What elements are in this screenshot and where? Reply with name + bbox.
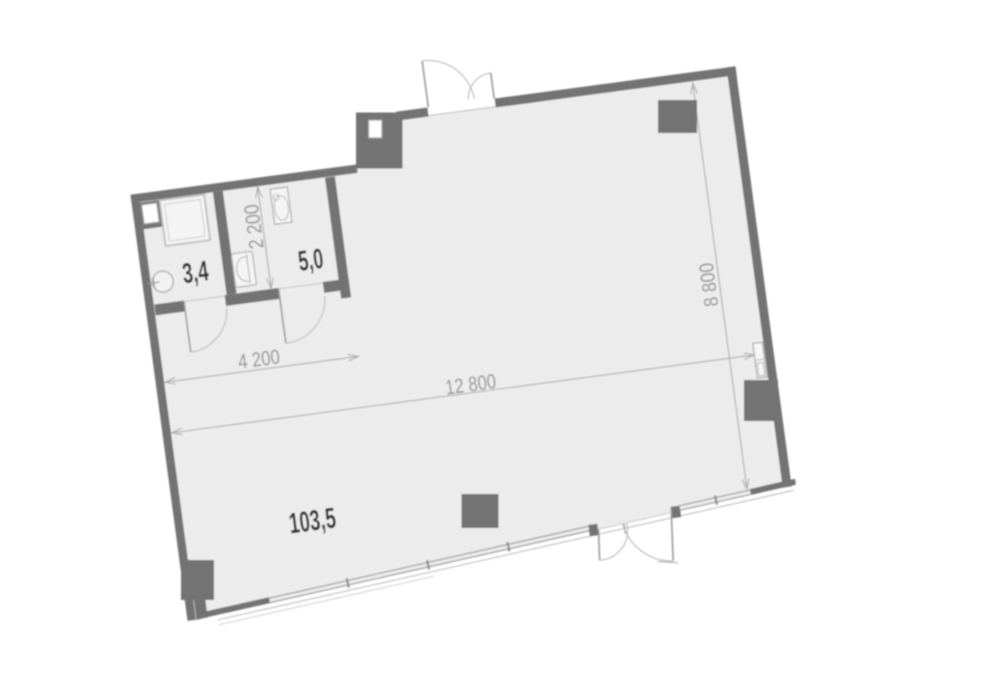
svg-text:103,5: 103,5 <box>287 502 338 540</box>
svg-text:3,4: 3,4 <box>180 255 210 290</box>
svg-text:5,0: 5,0 <box>296 243 325 278</box>
